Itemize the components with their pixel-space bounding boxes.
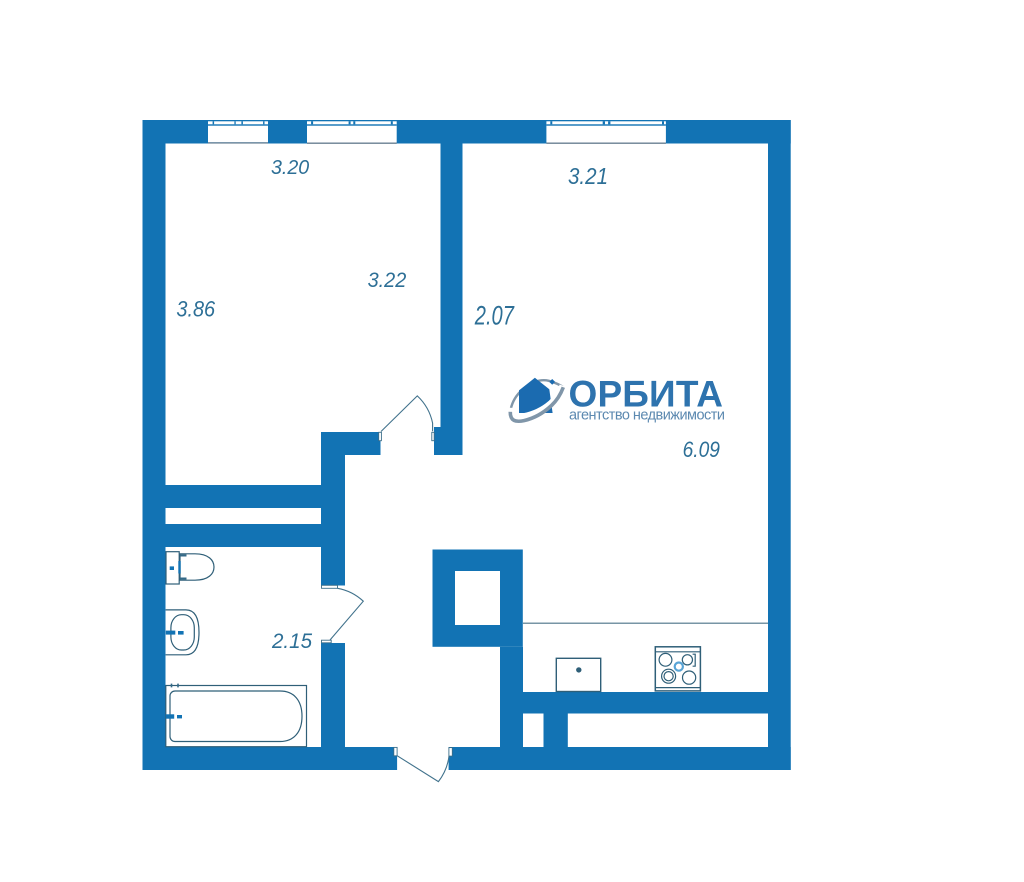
svg-text:3.22: 3.22 [368, 268, 407, 292]
svg-text:2.15: 2.15 [271, 630, 312, 653]
svg-text:агентство недвижимости: агентство недвижимости [569, 407, 725, 423]
svg-text:3.86: 3.86 [176, 296, 215, 321]
svg-text:3.21: 3.21 [568, 163, 608, 189]
svg-text:2.07: 2.07 [474, 301, 515, 331]
svg-text:6.09: 6.09 [683, 437, 720, 462]
svg-text:3.20: 3.20 [271, 157, 309, 179]
